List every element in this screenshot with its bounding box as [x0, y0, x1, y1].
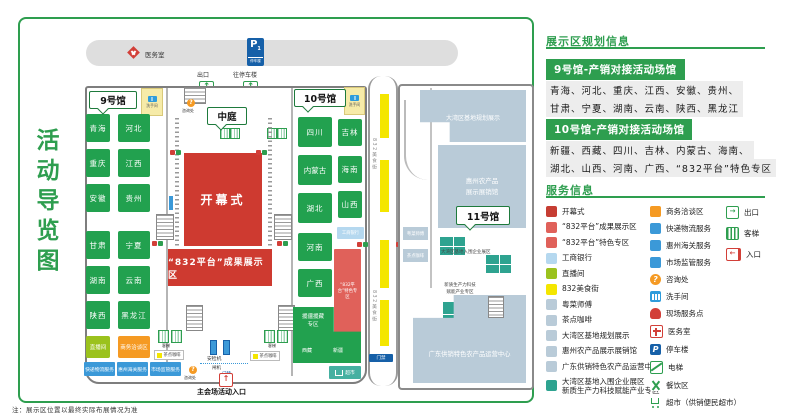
service-block: 快递物流服务 [84, 362, 115, 376]
legend-row: 洗手间 [650, 291, 741, 302]
hall10-province-block: 四川 [298, 117, 332, 147]
enterprise-booth-block [486, 255, 511, 273]
legend-row: “832平台”成果展示区 [546, 222, 660, 233]
tea-coffee-tag: 茶点咖啡 [250, 351, 280, 361]
yellow-swatch [546, 284, 557, 295]
restroom-box: 洗手间 [141, 88, 163, 116]
legend-row: 客梯 [726, 227, 761, 240]
legend-row: 广东供销特色农产品运营中心 [546, 361, 660, 372]
yellow-chip-icon [157, 353, 162, 358]
restroom-box: 洗手间 [344, 87, 365, 115]
hall9-province-grid: 甘肃 宁夏 湖南 云南 陕西 黑龙江 [86, 231, 150, 329]
blue-swatch [650, 257, 661, 268]
hall9-province-block: 黑龙江 [118, 301, 150, 329]
road-stripe [380, 160, 389, 212]
footnote: 注：展示区位置以最终实际布展情况为准 [12, 404, 138, 414]
service-block: 市场监管服务 [150, 362, 181, 376]
elevator-icon [171, 330, 182, 343]
entrance-icon [726, 248, 741, 261]
legend-row: 电梯 [650, 361, 741, 374]
legend-row: 出口 [726, 206, 761, 219]
service-block: 惠州海关服务 [117, 362, 148, 376]
hall9-province-block: 江西 [118, 149, 150, 177]
legend-column-3: 出口 客梯 入口 [726, 206, 761, 261]
turnstile-label: 闸机 [212, 365, 221, 371]
medical-room-label: 医务室 [145, 49, 165, 59]
gray-blue-swatch [546, 346, 557, 357]
elevator-icon [264, 330, 275, 343]
enterprise-zone-label: 大湾区基地入围企业展区 [441, 249, 491, 255]
hall10-province-block: 广西 [298, 269, 332, 297]
tag-atrium: 中庭 [207, 107, 247, 125]
zigzag-wall [175, 118, 179, 246]
tag-hall11: 11号馆 [456, 206, 510, 225]
light-blue-swatch [546, 253, 557, 264]
tech-zone-label: 新质生产力科技赋能产业专区 [443, 283, 477, 297]
road-name-label: 832美食街 [370, 290, 377, 323]
stairs-icon [274, 214, 292, 240]
teal-swatch [546, 380, 557, 391]
restroom-icon [350, 95, 359, 101]
elevator-icon [726, 227, 739, 240]
chef-tag: 粤菜师傅 [403, 227, 428, 240]
stairs-icon [186, 305, 203, 331]
entry-exit-marker [170, 150, 181, 155]
yellow-green-swatch [546, 268, 557, 279]
legend-column-1: 开幕式 “832平台”成果展示区 “832平台”特色专区 工商银行 直播间 83… [546, 206, 660, 395]
elevator-icon [277, 128, 287, 139]
to-parking-label: 往停车楼 [233, 70, 257, 79]
hall9-province-block: 重庆 [86, 149, 110, 177]
road-stripe [380, 240, 389, 288]
escalator-icon [650, 361, 663, 374]
hall9-province-block: 青海 [86, 114, 110, 142]
exit-label: 出口 [197, 70, 209, 79]
legend-row: 832美食街 [546, 284, 660, 295]
hall9-province-grid: 青海 河北 重庆 江西 安徽 贵州 [86, 114, 150, 212]
parking-sign-label: 停车楼 [248, 57, 263, 64]
parking-icon [650, 344, 661, 355]
zigzag-wall [268, 118, 272, 246]
info-icon [650, 274, 661, 285]
restroom-icon [148, 96, 157, 102]
gray-blue-swatch [546, 361, 557, 372]
legend-row: 工商银行 [546, 253, 660, 264]
hall9-province-block: 甘肃 [86, 231, 110, 259]
orange-swatch [650, 206, 661, 217]
legend-row: 粤菜师傅 [546, 299, 660, 310]
legend-row: 惠州农产品展示展销馆 [546, 346, 660, 357]
cart-icon [650, 397, 661, 408]
service-point-icon [650, 308, 661, 319]
yellow-chip-icon [253, 354, 258, 359]
info-desk-icon [187, 99, 195, 107]
exit-icon [726, 206, 739, 219]
hall9-province-block: 湖南 [86, 266, 110, 294]
special-zone-block: “832平台”特色专区 [334, 249, 361, 333]
security-machine-label: 安检机 [207, 355, 221, 362]
restroom-icon [650, 291, 661, 302]
blue-swatch [650, 240, 661, 251]
legend-row: 入口 [726, 248, 761, 261]
hall10-province-block: 山西 [338, 191, 362, 218]
hall9-province-block: 云南 [118, 266, 150, 294]
tea-coffee-block: 茶点咖啡 [403, 249, 428, 262]
tag-hall9: 9号馆 [89, 91, 137, 109]
red-swatch [546, 206, 557, 217]
tibet-label: 西藏 [302, 347, 312, 354]
hall10-province-block: 内蒙古 [298, 155, 332, 185]
entry-exit-marker [277, 241, 288, 246]
dining-icon [650, 380, 661, 391]
legend-row: 直播间 [546, 268, 660, 279]
xinjiang-label: 新疆 [333, 347, 343, 354]
turnstile-row [200, 363, 248, 364]
elevator-pair [158, 330, 182, 343]
entry-exit-marker [256, 150, 267, 155]
hall9-province-list-line: 甘肃、宁夏、湖南、云南、陕西、黑龙江 [546, 99, 743, 117]
tag-hall10: 10号馆 [294, 89, 346, 107]
hall9-province-block: 陕西 [86, 301, 110, 329]
map-title: 活动导览图 [28, 128, 62, 278]
legend-row: 医务室 [650, 325, 741, 338]
entry-exit-marker [152, 241, 163, 246]
light-red-swatch [546, 222, 557, 233]
supermarket-block: 超市 [329, 366, 361, 379]
hall9-province-block: 贵州 [118, 184, 150, 212]
gray-blue-swatch [546, 315, 557, 326]
hall10-province-block: 河南 [298, 233, 332, 261]
elevator-label: 客梯 [162, 343, 170, 349]
gray-blue-swatch [546, 299, 557, 310]
hall10-province-list-line: 湖北、山西、河南、广西、“832平台”特色专区 [546, 159, 776, 177]
tea-coffee-tag: 茶点咖啡 [154, 350, 184, 360]
legend-row: “832平台”特色专区 [546, 237, 660, 248]
road-stripe [380, 94, 389, 138]
legend-row: 咨询处 [650, 274, 741, 285]
light-red-swatch [546, 237, 557, 248]
legend-row: 开幕式 [546, 206, 660, 217]
road-name-label: 832美食街 [370, 138, 377, 171]
elevator-icon [230, 128, 240, 139]
elevator-icon [277, 330, 288, 343]
elevator-label: 客梯 [268, 343, 276, 349]
road-stripe [380, 300, 389, 346]
stairs-icon [156, 214, 174, 240]
entry-exit-marker [357, 242, 368, 247]
opening-ceremony-block: 开幕式 [184, 153, 262, 246]
achievement-zone-block: “832平台”成果展示区 [168, 249, 272, 286]
info-desk-label: 咨询处 [184, 375, 196, 381]
hall9-province-block: 安徽 [86, 184, 110, 212]
main-entrance-label: 主会场活动入口 [197, 387, 246, 397]
hall10-province-block: 吉林 [338, 119, 362, 146]
hall10-province-block: 海南 [338, 156, 362, 183]
stairs-icon [488, 296, 504, 318]
legend-row: 超市（供销便民超市） [650, 397, 741, 408]
security-machine-icon [210, 340, 217, 355]
icbc-block: 工商银行 [337, 227, 364, 239]
elevator-icon [158, 330, 169, 343]
title-underline [546, 196, 765, 198]
stairs-icon [278, 305, 295, 331]
hall10-province-list-line: 新疆、西藏、四川、吉林、内蒙古、海南、 [546, 141, 754, 159]
business-area-block: 商务洽谈区 [118, 336, 150, 358]
legend-row: 大湾区基地规划展示 [546, 330, 660, 341]
hall9-service-row: 快递物流服务 惠州海关服务 市场监管服务 [84, 362, 181, 376]
service-kiosk-icon [169, 196, 173, 210]
elevator-pair [264, 330, 288, 343]
gray-blue-swatch [546, 330, 557, 341]
parking-sign: P1 停车楼 [247, 38, 264, 66]
top-road-band [86, 40, 458, 66]
live-room-block: 直播间 [86, 336, 110, 358]
info-desk-label: 咨询处 [182, 108, 194, 114]
hall10-province-block: 湖北 [298, 193, 332, 223]
hall9-province-block: 河北 [118, 114, 150, 142]
legend-row: 餐饮区 [650, 380, 741, 391]
hall10-header: 10号馆-产销对接活动场馆 [546, 119, 692, 140]
main-entrance-icon [219, 373, 233, 387]
hall9-province-block: 宁夏 [118, 231, 150, 259]
legend-row: 停车楼 [650, 344, 741, 355]
legend-row: 现场服务点 [650, 308, 741, 319]
security-machine-icon [223, 340, 230, 355]
title-underline [546, 47, 765, 49]
legend-row: 茶点咖啡 [546, 315, 660, 326]
blue-swatch [650, 223, 661, 234]
medical-icon [650, 325, 663, 338]
cart-icon [335, 370, 343, 376]
road-access-gate: 门禁 [369, 354, 393, 362]
hall9-header: 9号馆-产销对接活动场馆 [546, 59, 685, 80]
hall9-province-list-line: 青海、河北、重庆、江西、安徽、贵州、 [546, 81, 743, 99]
info-desk-icon [189, 366, 197, 374]
legend-row: 大湾区基地入围企业展区新质生产力科技赋能产业专区 [546, 377, 660, 396]
